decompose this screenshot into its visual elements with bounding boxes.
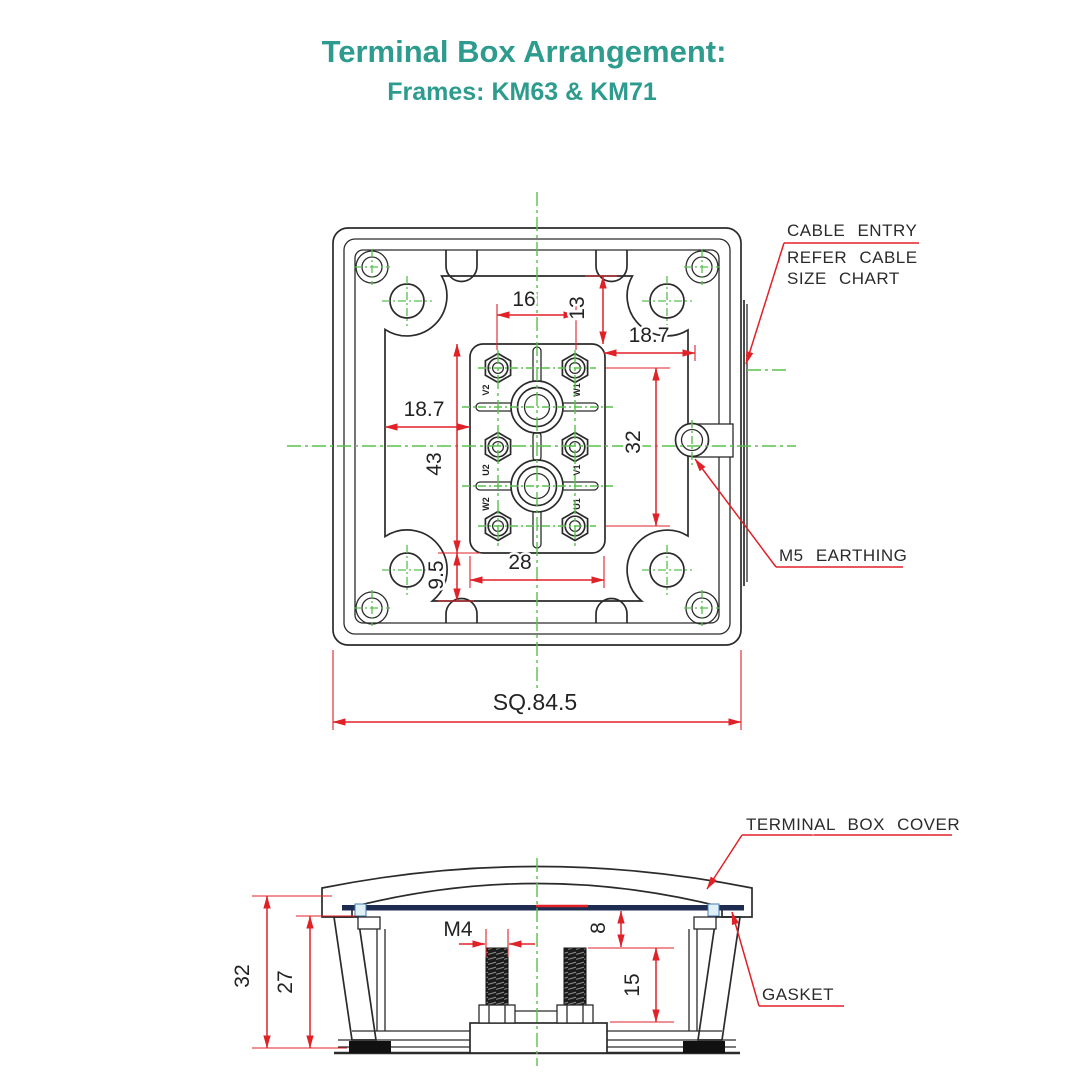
terminal-label: U2 <box>481 464 491 476</box>
stud-thread <box>486 948 508 1005</box>
callout-gasket: GASKET <box>762 985 834 1004</box>
dim-text-inner-height: 27 <box>274 970 297 993</box>
terminal-label: V2 <box>481 384 491 395</box>
terminal-block-pedestal <box>470 1023 607 1053</box>
stud-base <box>479 1005 515 1023</box>
terminal-label: W1 <box>572 383 582 397</box>
dim-overall-height <box>252 896 347 1048</box>
stud-thread <box>564 948 586 1005</box>
mounting-foot <box>349 1041 391 1053</box>
callout-cable-entry-line3: SIZE CHART <box>787 269 900 288</box>
dim-text-pitch-x: 16 <box>512 288 535 311</box>
dim-text-right-offset: 18.7 <box>629 324 670 347</box>
earthing-terminal <box>676 424 734 458</box>
gasket-end <box>708 904 719 916</box>
dim-text-left-offset: 18.7 <box>404 398 445 421</box>
cable-entry-side-plate <box>744 300 747 586</box>
dim-text-stud-size: M4 <box>443 918 472 941</box>
dim-text-stud-length: 15 <box>621 973 644 996</box>
callout-earthing: M5 EARTHING <box>779 546 907 565</box>
dim-text-block-width: 28 <box>508 551 531 574</box>
dim-text-cover-clearance: 8 <box>587 922 610 934</box>
callout-cover: TERMINAL BOX COVER <box>746 815 960 834</box>
callout-cable-entry-line2: REFER CABLE <box>787 248 918 267</box>
terminal-box-drawing: Terminal Box Arrangement: Frames: KM63 &… <box>0 0 1080 1080</box>
dim-text-overall-square: SQ.84.5 <box>493 689 577 715</box>
gasket-end <box>355 904 366 916</box>
dim-text-top-offset: 13 <box>566 296 589 319</box>
terminal-label: W2 <box>481 497 491 511</box>
dim-text-overall-height: 32 <box>231 964 254 987</box>
wall-step <box>694 917 716 929</box>
dim-inner-height <box>296 916 355 1048</box>
box-wall-left <box>334 917 376 1040</box>
callout-texts: CABLE ENTRY REFER CABLE SIZE CHART M5 EA… <box>746 221 960 1004</box>
terminal-label: U1 <box>572 498 582 510</box>
page-title: Terminal Box Arrangement: <box>322 34 727 69</box>
top-view-drawing: V2 W1 U2 V1 W2 U1 <box>333 228 747 645</box>
mounting-foot <box>683 1041 725 1053</box>
terminal-label: V1 <box>572 464 582 475</box>
dim-text-bottom-offset: 9.5 <box>425 560 448 589</box>
terminal-studs <box>479 948 593 1023</box>
page-subtitle: Frames: KM63 & KM71 <box>387 78 657 106</box>
drawing-sheet: Terminal Box Arrangement: Frames: KM63 &… <box>0 0 1080 1080</box>
box-wall-right <box>698 917 740 1040</box>
callout-cable-entry-line1: CABLE ENTRY <box>787 221 917 240</box>
leader-cover <box>707 835 952 889</box>
dim-text-block-height: 43 <box>423 452 446 475</box>
stud-base <box>557 1005 593 1023</box>
wall-step <box>358 917 380 929</box>
dim-text-pitch-y: 32 <box>622 430 645 453</box>
